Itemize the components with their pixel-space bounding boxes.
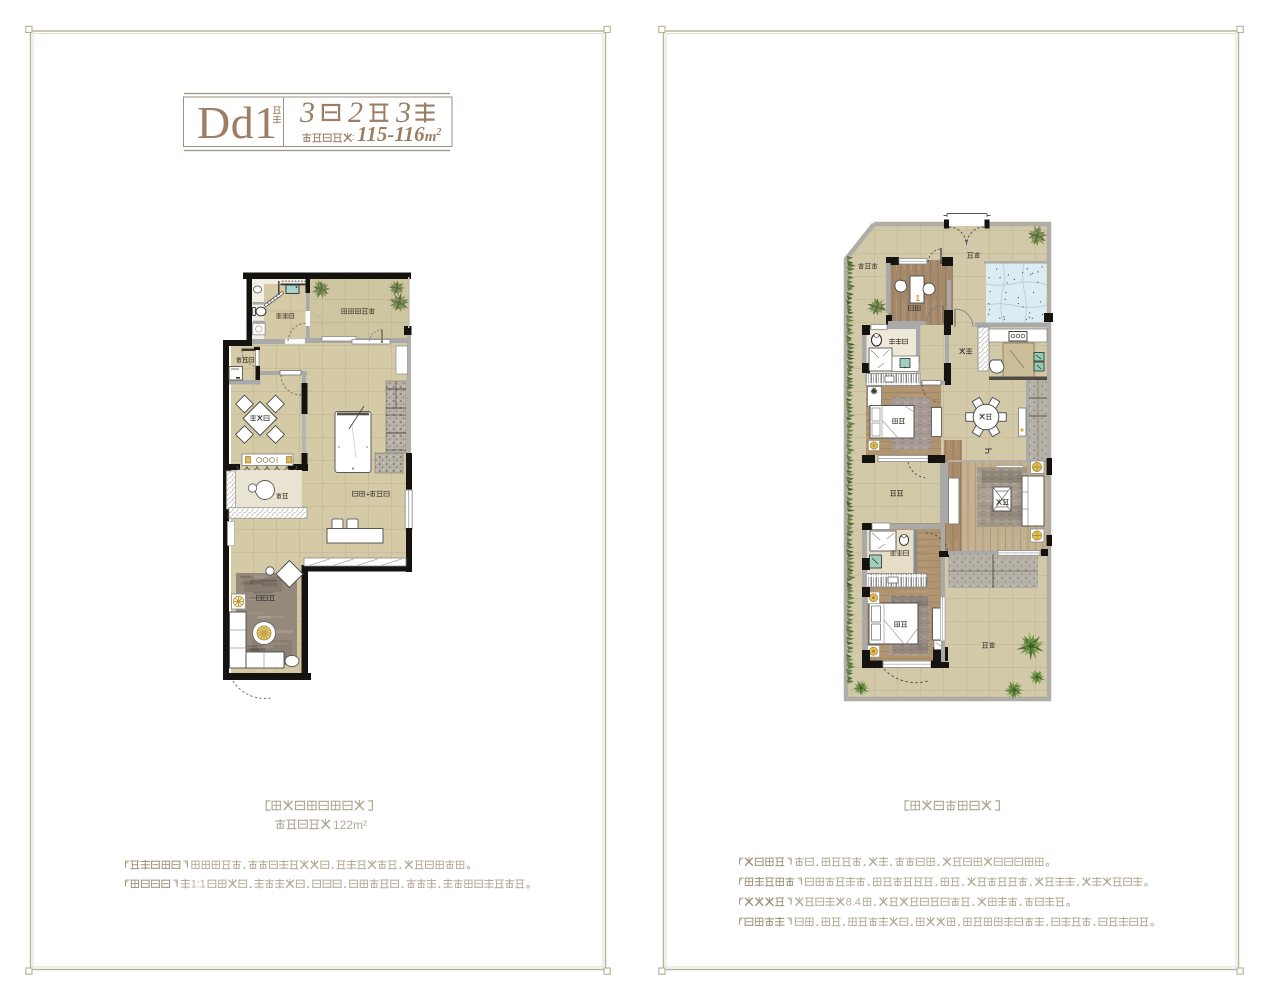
svg-text:Dd1: Dd1 [197, 97, 278, 148]
svg-text:1:1: 1:1 [191, 879, 206, 891]
svg-text:1: 1 [916, 294, 921, 303]
svg-text:122m²: 122m² [333, 818, 367, 832]
svg-text:+: + [366, 489, 370, 498]
svg-text:3: 3 [299, 96, 315, 129]
svg-text:115-116m2: 115-116m2 [357, 122, 441, 146]
svg-text:8.4: 8.4 [846, 897, 861, 909]
svg-text::: : [352, 132, 355, 142]
